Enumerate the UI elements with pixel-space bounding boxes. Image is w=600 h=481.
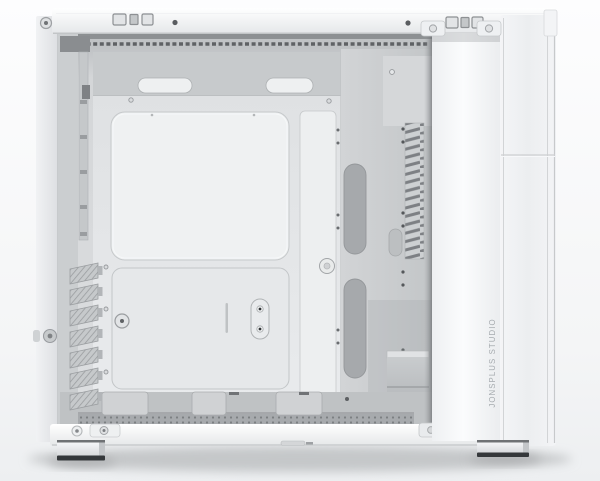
port-cutout xyxy=(446,17,458,28)
bottom-tabs xyxy=(102,392,322,415)
rail-slot xyxy=(306,442,313,445)
cable-cutout-front-lower xyxy=(344,279,366,378)
thumbscrew-knob-stem xyxy=(33,330,40,342)
grommet-screw-center xyxy=(120,319,124,323)
rail-latch xyxy=(281,441,305,446)
rear-rail xyxy=(79,52,88,240)
rear-panel-edge xyxy=(33,16,58,442)
front-panel-gap-shadow xyxy=(424,30,433,428)
foot-rubber xyxy=(477,453,529,458)
port-cutout xyxy=(113,14,126,25)
io-cutouts-left xyxy=(113,14,153,25)
cable-slot xyxy=(226,303,229,333)
port-cutout xyxy=(461,18,469,28)
floor-screw xyxy=(345,397,349,401)
case-foot-right xyxy=(477,440,529,457)
front-top-corner xyxy=(544,10,557,36)
bottom-tab xyxy=(192,392,226,415)
brand-text: JONSPLUS STUDIO xyxy=(488,318,497,407)
bottom-tab xyxy=(276,392,322,415)
product-photo-pc-case: JONSPLUS STUDIO xyxy=(0,0,600,481)
bracket-screw xyxy=(390,70,395,75)
top-screw xyxy=(172,20,177,25)
bottom-tab xyxy=(102,392,148,415)
floor-slot xyxy=(229,392,239,395)
screw-bracket-pill xyxy=(251,299,269,339)
cable-cutout-top-left xyxy=(138,78,192,93)
bottom-floor xyxy=(60,392,432,426)
top-screw-mid xyxy=(405,20,410,25)
cable-cutout-top-right xyxy=(266,78,313,93)
dust-filter-strip xyxy=(78,414,414,425)
floor-slot xyxy=(299,392,309,395)
case-foot-left xyxy=(57,440,105,461)
pc-case: JONSPLUS STUDIO xyxy=(33,8,557,461)
cable-channel-cover xyxy=(300,111,336,405)
cpu-cutout-panel xyxy=(111,112,289,260)
rear-top-corner xyxy=(60,36,90,52)
front-panel: JONSPLUS STUDIO xyxy=(421,10,557,446)
rear-bracket xyxy=(82,85,90,99)
port-cutout xyxy=(142,14,153,25)
front-vent-louvers xyxy=(405,123,424,259)
front-interior xyxy=(341,49,432,428)
cable-cutout-front-upper xyxy=(344,164,366,254)
case-illustration: JONSPLUS STUDIO xyxy=(0,0,600,481)
foot-rubber xyxy=(57,456,105,461)
small-cutout xyxy=(389,229,402,256)
motherboard-tray xyxy=(93,52,341,406)
port-cutout xyxy=(130,15,138,25)
